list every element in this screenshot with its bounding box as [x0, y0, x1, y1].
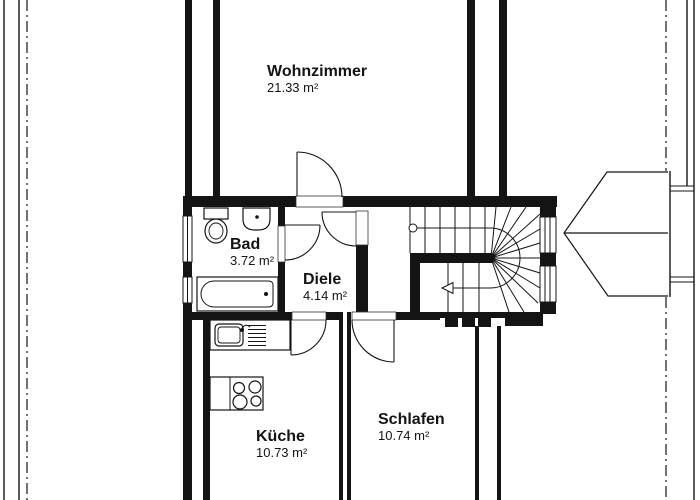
door-swing-diele-east: [322, 212, 356, 246]
bathtub-icon: [197, 277, 278, 311]
wall-kueche-schlafen-b: [347, 312, 351, 500]
roof-boundary-left: [4, 0, 27, 500]
room-label-schlafen: Schlafen 10.74 m²: [378, 411, 445, 443]
room-area-bad: 3.72 m²: [230, 254, 274, 268]
wall-bad-diele-a: [278, 207, 285, 226]
window-icon: [540, 266, 556, 302]
wall-stair-south-block: [505, 312, 543, 326]
wall-stair-east-b: [540, 253, 556, 266]
wall-stair-south-rail-bar: [440, 312, 505, 318]
threshold-kueche-door: [292, 312, 326, 320]
wall-wohnzimmer-east: [467, 0, 475, 196]
wall-south-of-landing: [396, 312, 440, 320]
toilet-icon: [204, 208, 228, 243]
wall-east-outer-upper: [499, 0, 507, 196]
wall-bad-west-a: [183, 207, 192, 216]
room-area-diele: 4.14 m²: [303, 289, 347, 303]
kitchen-fixtures: [210, 320, 290, 410]
window-icon: [183, 277, 192, 303]
window-icon: [540, 217, 556, 253]
roof-outline-arrow: [564, 172, 668, 296]
door-swing-bad: [285, 225, 320, 260]
wall-bad-west-b: [183, 262, 192, 277]
threshold-schlafen-door: [352, 312, 396, 320]
railing-post-icon: [445, 318, 458, 327]
wall-stair-divider: [420, 253, 492, 263]
room-area-schlafen: 10.74 m²: [378, 429, 445, 443]
room-name-wohnzimmer: Wohnzimmer: [267, 63, 367, 80]
railing-posts: [445, 318, 491, 327]
door-swing-schlafen: [352, 320, 394, 362]
wall-stair-east-c: [540, 302, 556, 314]
room-name-kueche: Küche: [256, 428, 307, 445]
stair-treads-upper: [410, 207, 485, 253]
wall-stair-inner: [410, 253, 420, 312]
room-label-bad: Bad 3.72 m²: [230, 236, 274, 268]
kitchen-sink-icon: [210, 320, 290, 350]
room-label-kueche: Küche 10.73 m²: [256, 428, 307, 460]
wall-top-left-segment: [183, 196, 296, 207]
railing-post-icon: [462, 318, 475, 327]
threshold-diele-east-door: [356, 211, 368, 245]
room-name-schlafen: Schlafen: [378, 411, 445, 428]
wall-stair-east-a: [540, 207, 556, 217]
threshold-wohnzimmer-door: [296, 196, 343, 207]
door-swing-kueche: [291, 320, 326, 355]
wall-kueche-door-jamb: [326, 312, 339, 320]
window-icon: [183, 216, 192, 262]
wall-kueche-schlafen-a: [339, 312, 343, 500]
wall-schlafen-east-b: [497, 326, 501, 500]
wall-top-right-segment: [343, 196, 557, 207]
room-label-diele: Diele 4.14 m²: [303, 271, 347, 303]
room-area-wohnzimmer: 21.33 m²: [267, 81, 367, 95]
wall-bad-diele-b: [278, 262, 285, 312]
room-label-wohnzimmer: Wohnzimmer 21.33 m²: [267, 63, 367, 95]
stove-hob-icon: [210, 377, 263, 410]
wall-wohnzimmer-west: [213, 0, 220, 196]
wall-south-of-bad: [183, 312, 292, 320]
threshold-bad-door: [278, 226, 285, 262]
wall-schlafen-east-a: [475, 326, 479, 500]
stair-winder-fan: [491, 207, 540, 312]
floor-plan: Wohnzimmer 21.33 m² Bad 3.72 m² Diele 4.…: [0, 0, 700, 500]
roof-boundary-right: [666, 0, 694, 500]
stair-walkline-start-icon: [409, 224, 417, 232]
wall-diele-east: [356, 245, 368, 312]
room-name-bad: Bad: [230, 236, 274, 253]
wall-west-outer-upper: [185, 0, 192, 196]
room-name-diele: Diele: [303, 271, 347, 288]
washbasin-icon: [243, 208, 270, 230]
door-swing-wohnzimmer: [297, 152, 342, 197]
railing-post-icon: [478, 318, 491, 327]
wall-west-lower: [183, 303, 192, 500]
wall-west-lower-inner: [203, 320, 210, 500]
room-area-kueche: 10.73 m²: [256, 446, 307, 460]
